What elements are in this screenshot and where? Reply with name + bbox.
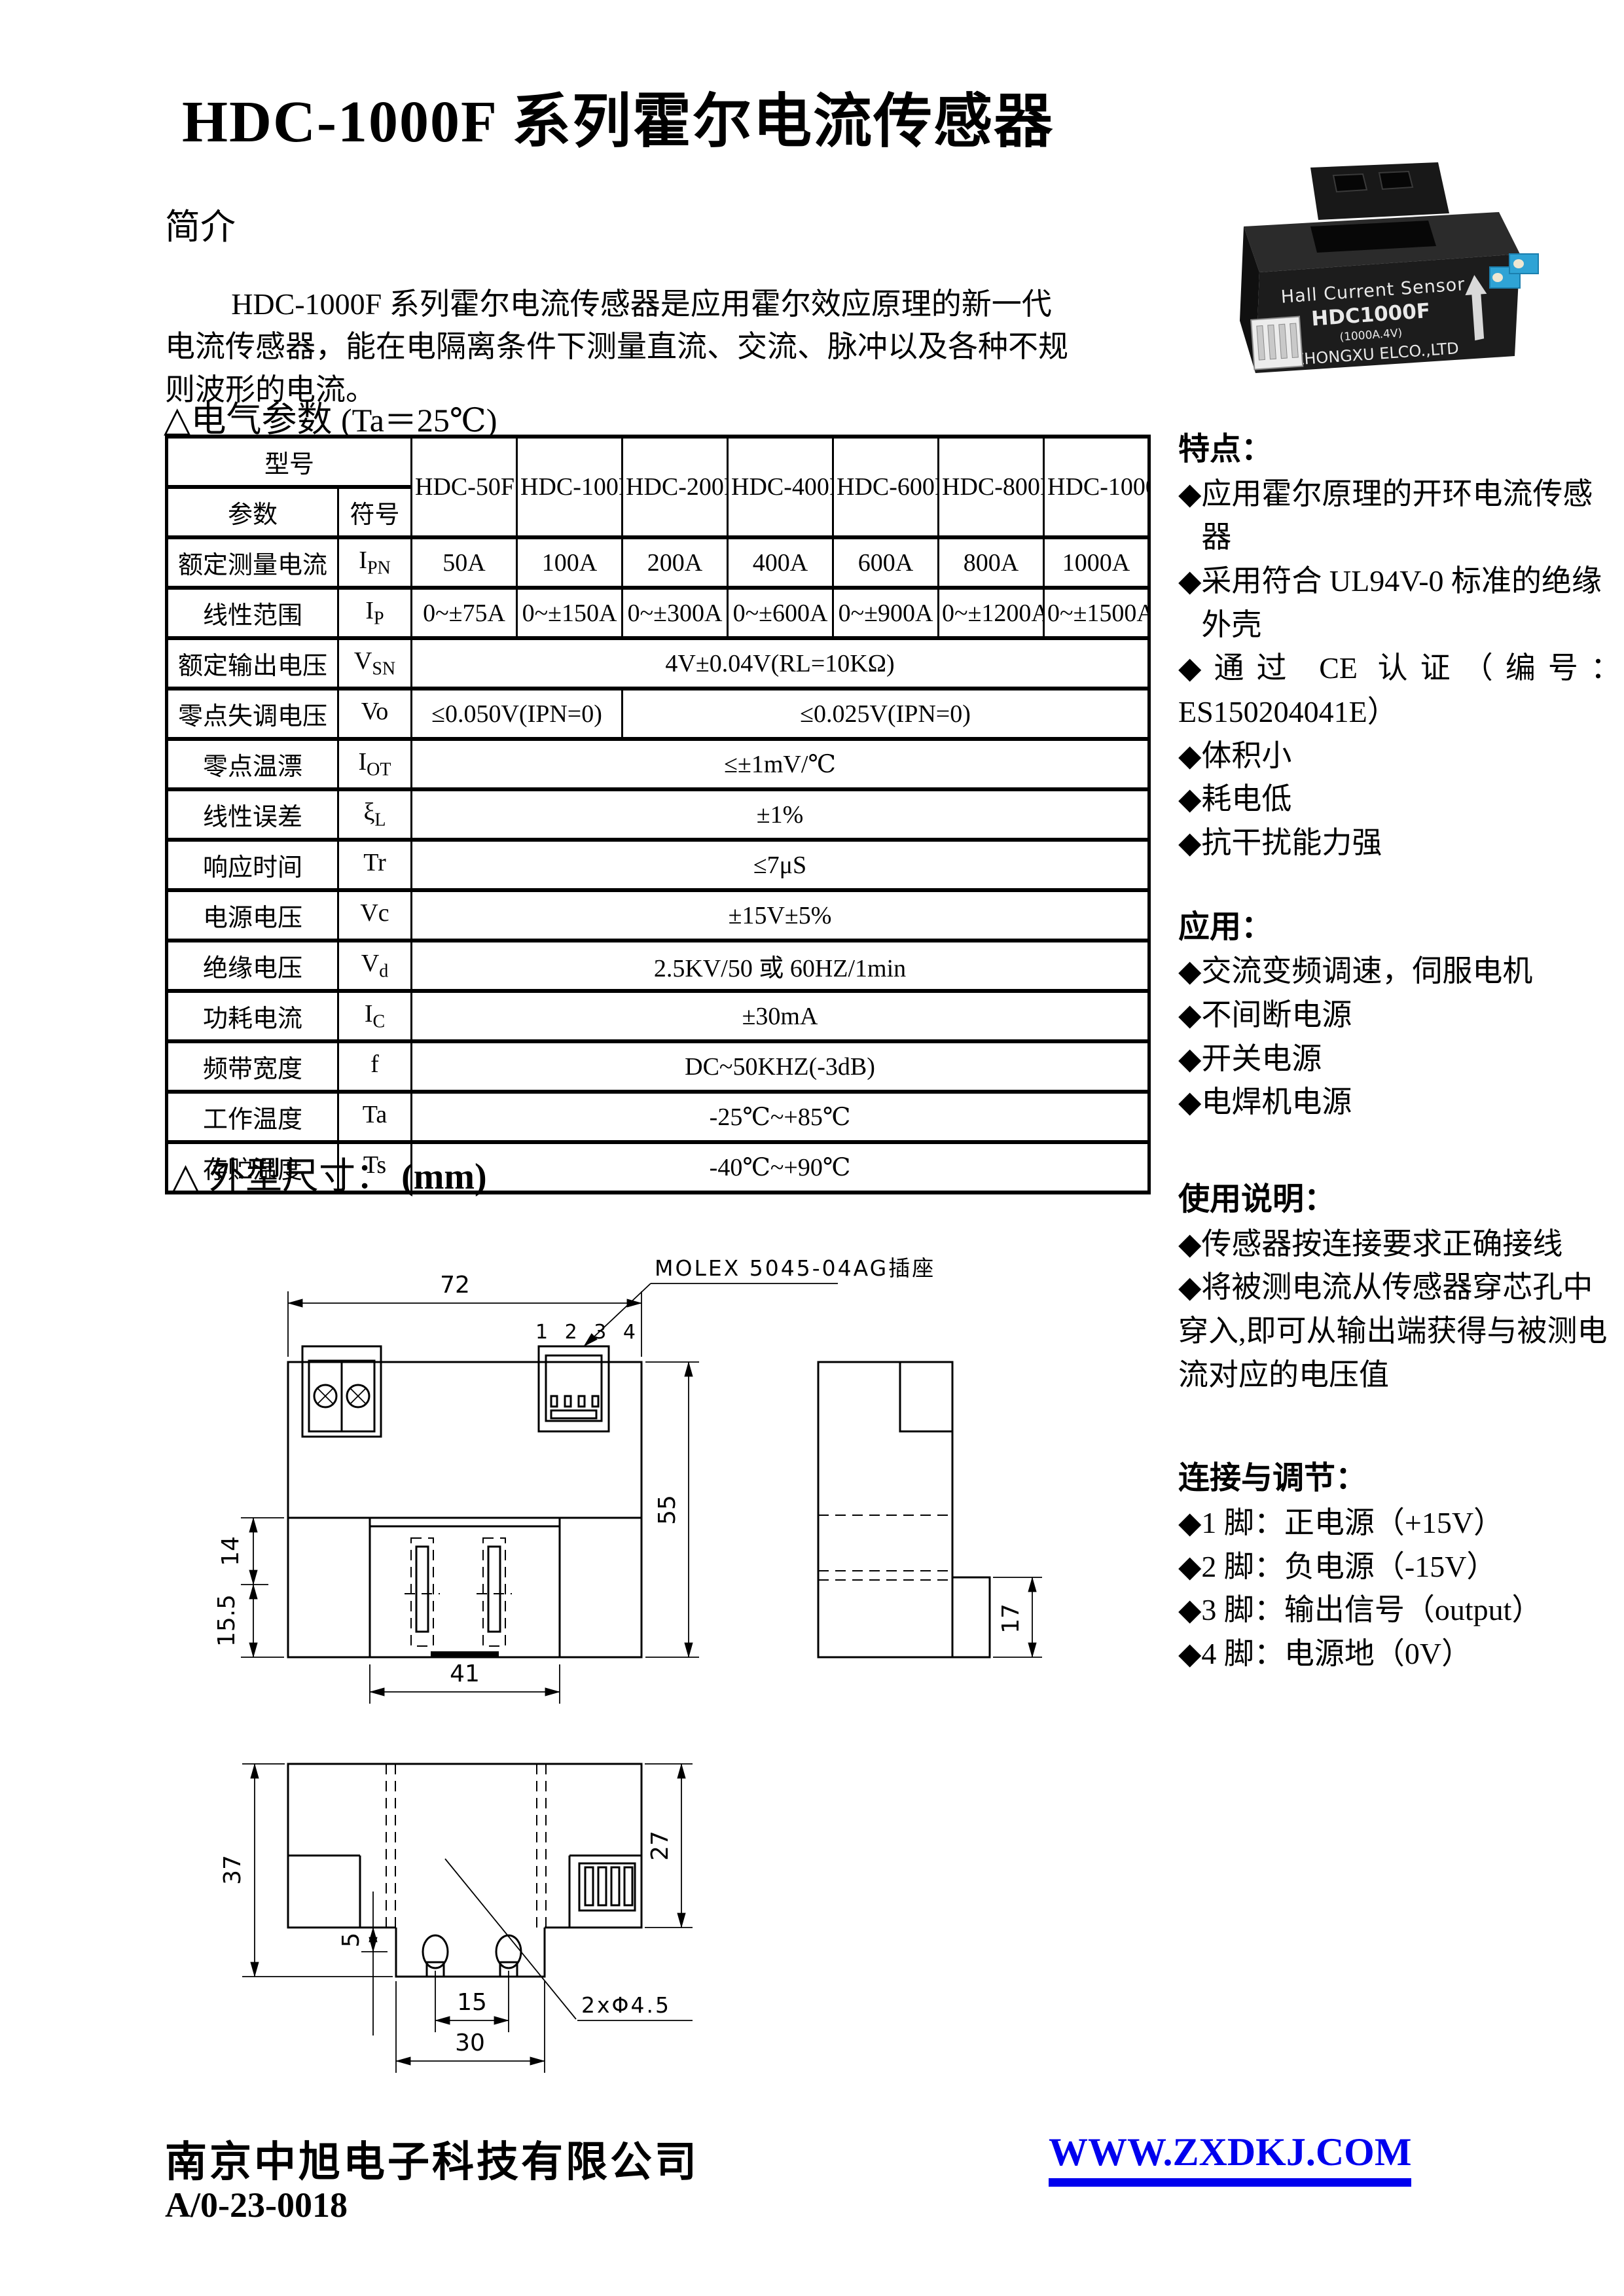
electrical-params-table: 型号 HDC-50F HDC-100F HDC-200F HDC-400F HD…: [165, 435, 1151, 1194]
diamond-bullet-icon: ◆: [1178, 734, 1201, 778]
param-name: 电源电压: [167, 890, 338, 941]
param-value: ≤±1mV/℃: [412, 739, 1149, 789]
dimension-drawing: 1 2 3 4 MOLEX 5045-04AG插座 72 55 14 15.5: [157, 1240, 1178, 2091]
param-name: 零点温漂: [167, 739, 338, 789]
param-symbol: IOT: [338, 739, 412, 789]
outline-heading-unit: (mm): [401, 1157, 487, 1197]
hole-callout-label: 2xΦ4.5: [581, 1992, 671, 2018]
diamond-bullet-icon: ◆: [1178, 651, 1214, 685]
applications-heading: 应用：: [1178, 905, 1621, 950]
diamond-bullet-icon: ◆: [1178, 560, 1201, 603]
table-row: 功耗电流 IC ±30mA: [167, 991, 1149, 1041]
diamond-bullet-icon: ◆: [1178, 1501, 1201, 1545]
param-value: 0~±600A: [728, 588, 833, 638]
list-item: ◆将被测电流从传感器穿芯孔中穿入,即可从输出端获得与被测电流对应的电压值: [1178, 1266, 1621, 1397]
sidebar: 特点： ◆应用霍尔原理的开环电流传感器 ◆采用符合 UL94V-0 标准的绝缘外…: [1178, 427, 1621, 1676]
param-value: 0~±150A: [517, 588, 623, 638]
list-item: ◆4 脚：电源地（0V）: [1178, 1632, 1621, 1676]
param-symbol: ξL: [338, 789, 412, 840]
param-symbol: IP: [338, 588, 412, 638]
param-value: 0~±75A: [412, 588, 517, 638]
corner-param-label: 参数: [167, 487, 338, 537]
side-view: 17: [818, 1362, 1042, 1657]
sensor-body-illustration: Hall Current Sensor HDC1000F (1000A.4V) …: [1240, 162, 1538, 373]
param-name: 额定测量电流: [167, 537, 338, 588]
param-symbol: Ta: [338, 1092, 412, 1142]
electrical-heading-text: △电气参数: [164, 400, 333, 439]
param-value: ±30mA: [412, 991, 1149, 1041]
param-name: 线性范围: [167, 588, 338, 638]
param-value: 0~±900A: [833, 588, 939, 638]
electrical-heading-condition: (Ta＝25℃): [341, 402, 497, 439]
list-item: ◆抗干扰能力强: [1178, 821, 1621, 865]
diamond-bullet-icon: ◆: [1178, 473, 1201, 516]
param-value: 1000A: [1044, 537, 1149, 588]
param-value: ±15V±5%: [412, 890, 1149, 941]
product-photo: Hall Current Sensor HDC1000F (1000A.4V) …: [1212, 156, 1543, 378]
pin-numbers-label: 1 2 3 4: [535, 1321, 641, 1344]
usage-heading: 使用说明：: [1178, 1177, 1621, 1223]
diamond-bullet-icon: ◆: [1178, 778, 1201, 821]
dim-hole-pitch-label: 15: [457, 1989, 487, 2016]
table-row: 型号 HDC-50F HDC-100F HDC-200F HDC-400F HD…: [167, 437, 1149, 487]
dim-core-width-label: 41: [450, 1660, 480, 1687]
param-symbol: Tr: [338, 840, 412, 890]
param-name: 功耗电流: [167, 991, 338, 1041]
footer-website-link[interactable]: WWW.ZXDKJ.COM: [1049, 2130, 1411, 2187]
footer-doc-code: A/0-23-0018: [165, 2185, 348, 2225]
diamond-bullet-icon: ◆: [1178, 1588, 1201, 1632]
param-value: ≤0.025V(IPN=0): [623, 689, 1149, 739]
top-view-connector: [579, 1863, 635, 1910]
diamond-bullet-icon: ◆: [1178, 1037, 1201, 1081]
param-value: 0~±1200A: [939, 588, 1044, 638]
param-value: 600A: [833, 537, 939, 588]
dim-lower-left-label: 15.5: [213, 1594, 240, 1647]
param-symbol: f: [338, 1041, 412, 1092]
param-value: DC~50KHZ(-3dB): [412, 1041, 1149, 1092]
table-row: 工作温度 Ta -25℃~+85℃: [167, 1092, 1149, 1142]
dim-height-label: 55: [654, 1495, 681, 1525]
param-value: 400A: [728, 537, 833, 588]
list-item: ◆开关电源: [1178, 1037, 1621, 1081]
param-name: 工作温度: [167, 1092, 338, 1142]
param-value: 100A: [517, 537, 623, 588]
param-value: ≤7μS: [412, 840, 1149, 890]
param-value: 4V±0.04V(RL=10KΩ): [412, 638, 1149, 689]
list-item: ◆采用符合 UL94V-0 标准的绝缘外壳: [1178, 560, 1621, 647]
corner-symbol-label: 符号: [338, 487, 412, 537]
param-value: 800A: [939, 537, 1044, 588]
param-name: 响应时间: [167, 840, 338, 890]
param-symbol: Vd: [338, 941, 412, 991]
model-header: HDC-100F: [517, 437, 623, 537]
model-header: HDC-1000F: [1044, 437, 1149, 537]
top-view: 37 27 5 15 30 2xΦ4.5: [219, 1764, 693, 2073]
outline-heading-text: △ 外型尺寸：: [171, 1157, 392, 1197]
diamond-bullet-icon: ◆: [1178, 1632, 1201, 1676]
table-row: 频带宽度 f DC~50KHZ(-3dB): [167, 1041, 1149, 1092]
dim-tab-offset-label: 5: [338, 1933, 365, 1948]
list-item: ◆传感器按连接要求正确接线: [1178, 1223, 1621, 1266]
front-view: 1 2 3 4 MOLEX 5045-04AG插座 72 55 14 15.5: [213, 1255, 935, 1704]
model-header: HDC-400F: [728, 437, 833, 537]
param-name: 频带宽度: [167, 1041, 338, 1092]
param-value: -40℃~+90℃: [412, 1142, 1149, 1193]
diamond-bullet-icon: ◆: [1178, 1270, 1201, 1304]
table-row: 响应时间 Tr ≤7μS: [167, 840, 1149, 890]
param-value: 0~±300A: [623, 588, 728, 638]
model-header: HDC-50F: [412, 437, 517, 537]
datasheet-page: HDC-1000F 系列霍尔电流传感器 简介 HDC-1000F 系列霍尔电流传…: [0, 0, 1624, 2296]
dim-upper-left-label: 14: [217, 1536, 244, 1566]
dim-top-right-label: 27: [647, 1831, 674, 1861]
list-item: ◆体积小: [1178, 734, 1621, 778]
dim-tab-width-label: 30: [455, 2030, 485, 2056]
footer-company: 南京中旭电子科技有限公司: [165, 2128, 699, 2189]
param-name: 零点失调电压: [167, 689, 338, 739]
table-row: 绝缘电压 Vd 2.5KV/50 或 60HZ/1min: [167, 941, 1149, 991]
list-item: ◆不间断电源: [1178, 994, 1621, 1037]
table-row: 电源电压 Vc ±15V±5%: [167, 890, 1149, 941]
dim-side-tab-label: 17: [998, 1604, 1024, 1634]
terminal-block: [302, 1346, 381, 1437]
param-value: -25℃~+85℃: [412, 1092, 1149, 1142]
list-item: ◆通过 CE 认证（编号：ES150204041E）: [1178, 647, 1621, 734]
param-value: 200A: [623, 537, 728, 588]
model-header: HDC-600F: [833, 437, 939, 537]
diamond-bullet-icon: ◆: [1178, 1545, 1201, 1589]
connector-callout-label: MOLEX 5045-04AG插座: [655, 1255, 935, 1281]
param-name: 绝缘电压: [167, 941, 338, 991]
list-item: ◆2 脚：负电源（-15V）: [1178, 1545, 1621, 1589]
model-header: HDC-800F: [939, 437, 1044, 537]
dim-width-label: 72: [440, 1272, 470, 1299]
photo-connector: [1251, 317, 1303, 370]
param-symbol: VSN: [338, 638, 412, 689]
table-row: 零点温漂 IOT ≤±1mV/℃: [167, 739, 1149, 789]
connection-heading: 连接与调节：: [1178, 1456, 1621, 1501]
list-item: ◆3 脚：输出信号（output）: [1178, 1588, 1621, 1632]
intro-heading: 简介: [165, 198, 236, 249]
param-symbol: IPN: [338, 537, 412, 588]
param-value: 2.5KV/50 或 60HZ/1min: [412, 941, 1149, 991]
molex-connector: [539, 1346, 609, 1431]
model-header: HDC-200F: [623, 437, 728, 537]
param-name: 额定输出电压: [167, 638, 338, 689]
list-item: ◆交流变频调速，伺服电机: [1178, 950, 1621, 994]
param-symbol: Vc: [338, 890, 412, 941]
table-row: 线性范围 IP 0~±75A 0~±150A 0~±300A 0~±600A 0…: [167, 588, 1149, 638]
diamond-bullet-icon: ◆: [1178, 821, 1201, 865]
diamond-bullet-icon: ◆: [1178, 994, 1201, 1037]
param-value: 0~±1500A: [1044, 588, 1149, 638]
param-symbol: IC: [338, 991, 412, 1041]
corner-model-label: 型号: [167, 437, 412, 487]
diamond-bullet-icon: ◆: [1178, 1081, 1201, 1124]
list-item: ◆1 脚：正电源（+15V）: [1178, 1501, 1621, 1545]
table-row: 线性误差 ξL ±1%: [167, 789, 1149, 840]
diamond-bullet-icon: ◆: [1178, 1223, 1201, 1266]
table-row: 零点失调电压 Vo ≤0.050V(IPN=0) ≤0.025V(IPN=0): [167, 689, 1149, 739]
table-row: 额定输出电压 VSN 4V±0.04V(RL=10KΩ): [167, 638, 1149, 689]
list-item: ◆电焊机电源: [1178, 1081, 1621, 1124]
features-heading: 特点：: [1178, 427, 1621, 473]
param-value: ±1%: [412, 789, 1149, 840]
dim-top-height-label: 37: [219, 1855, 246, 1885]
param-value: ≤0.050V(IPN=0): [412, 689, 623, 739]
outline-heading: △ 外型尺寸： (mm): [171, 1147, 487, 1200]
page-title: HDC-1000F 系列霍尔电流传感器: [182, 73, 1054, 158]
table-row: 额定测量电流 IPN 50A 100A 200A 400A 600A 800A …: [167, 537, 1149, 588]
list-item: ◆耗电低: [1178, 778, 1621, 821]
diamond-bullet-icon: ◆: [1178, 950, 1201, 994]
param-value: 50A: [412, 537, 517, 588]
param-symbol: Vo: [338, 689, 412, 739]
param-name: 线性误差: [167, 789, 338, 840]
list-item: ◆应用霍尔原理的开环电流传感器: [1178, 473, 1621, 560]
